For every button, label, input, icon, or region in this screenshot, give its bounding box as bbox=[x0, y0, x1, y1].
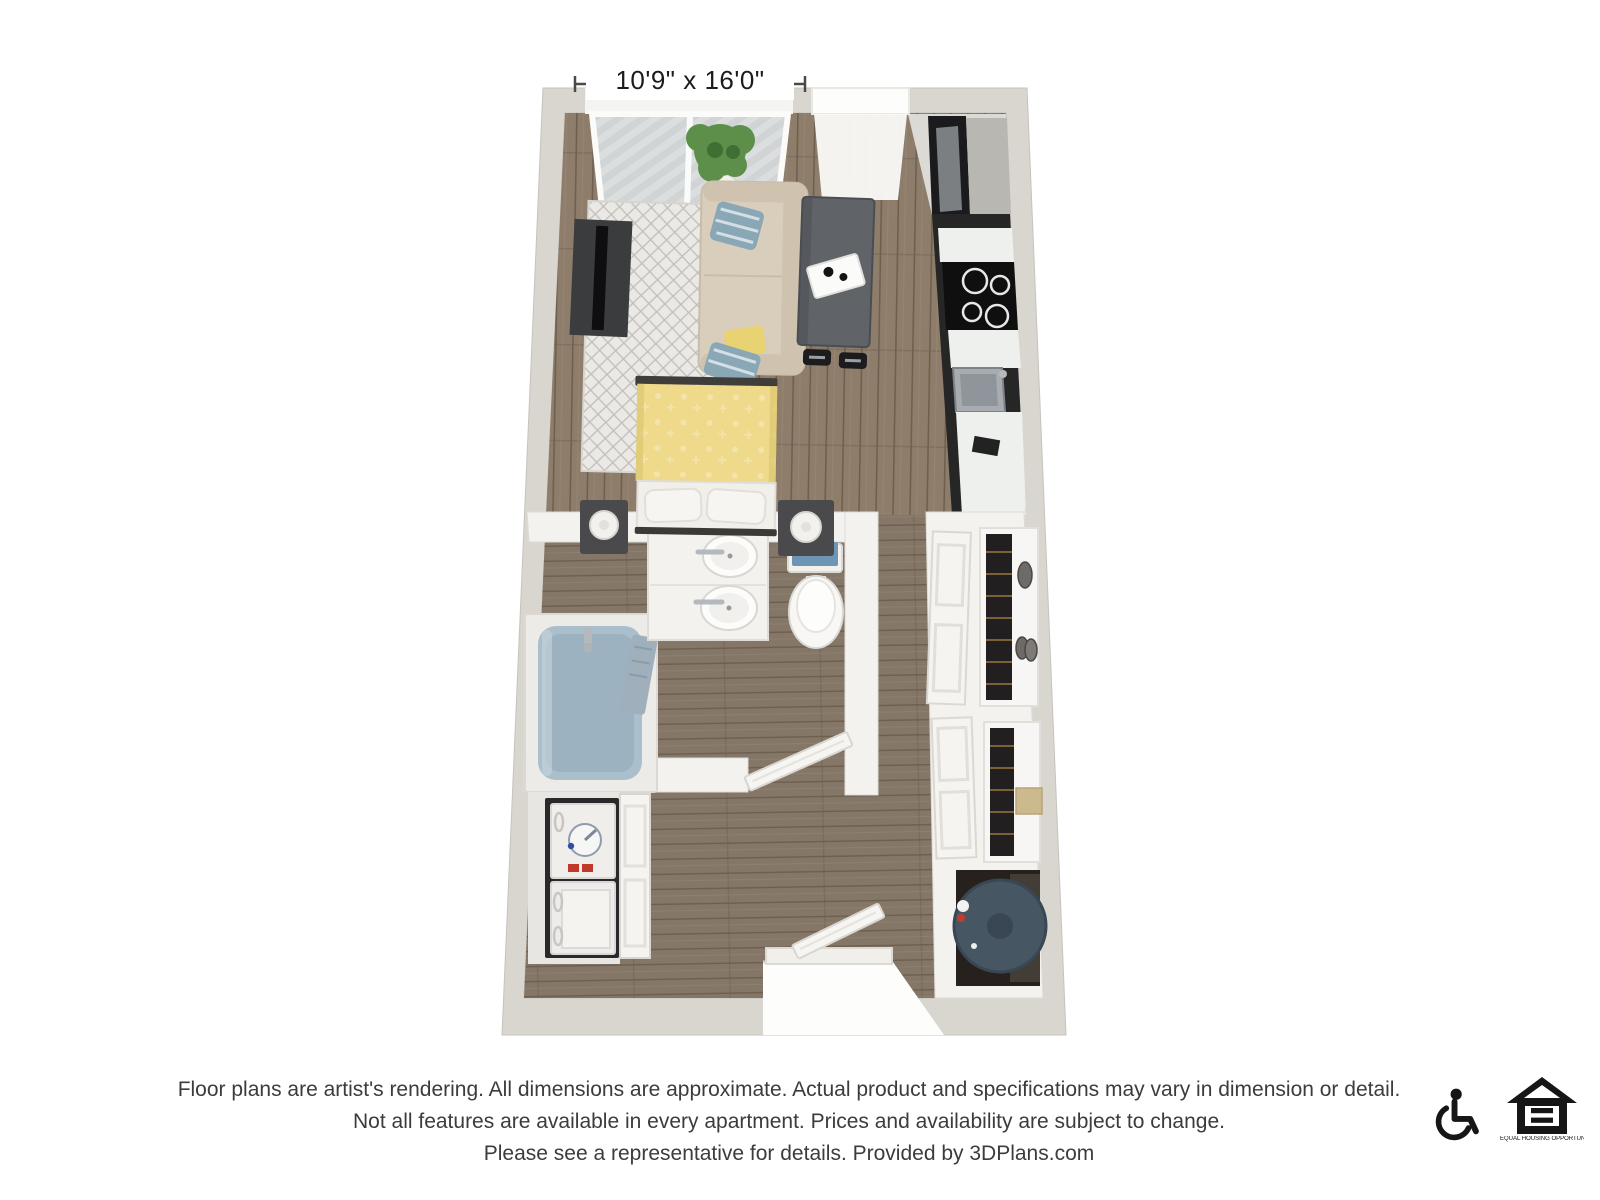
disclaimer-line-3: Please see a representative for details.… bbox=[0, 1138, 1578, 1170]
sofa bbox=[698, 181, 808, 389]
bathtub bbox=[525, 614, 658, 792]
equal-housing-opportunity-icon bbox=[1500, 1076, 1584, 1136]
wardrobe-closets bbox=[926, 512, 1046, 998]
closet-shelf-upper bbox=[980, 528, 1038, 706]
disclaimer-line-2: Not all features are available in every … bbox=[0, 1106, 1578, 1138]
bed-pillow bbox=[706, 489, 766, 525]
footer-icons: EQUAL HOUSING OPPORTUNITY bbox=[1426, 1076, 1584, 1143]
washer bbox=[551, 804, 615, 878]
kitchen-cabinet bbox=[966, 118, 1011, 214]
dryer bbox=[551, 882, 615, 954]
nightstand bbox=[778, 500, 834, 556]
kitchen-sink bbox=[953, 368, 1007, 412]
floor-plan-render bbox=[0, 0, 1600, 1200]
closet-door-lower bbox=[932, 717, 977, 858]
bed-pillow bbox=[645, 488, 702, 522]
cooktop bbox=[942, 262, 1018, 330]
floor-plan-page: 10'9" x 16'0" Floor plans are artist's r… bbox=[0, 0, 1600, 1200]
disclaimer: Floor plans are artist's rendering. All … bbox=[0, 1074, 1578, 1170]
disclaimer-line-1: Floor plans are artist's rendering. All … bbox=[0, 1074, 1578, 1106]
entry-threshold bbox=[766, 948, 892, 964]
kitchen-island bbox=[797, 197, 875, 369]
laundry-closet bbox=[528, 792, 620, 964]
closet-door-upper bbox=[927, 531, 971, 704]
equal-housing-caption: EQUAL HOUSING OPPORTUNITY bbox=[1500, 1136, 1584, 1143]
wheelchair-accessible-icon bbox=[1426, 1086, 1488, 1142]
vanity bbox=[648, 528, 768, 640]
window bbox=[812, 88, 909, 200]
toilet bbox=[788, 542, 843, 648]
bathroom-wall-right bbox=[845, 512, 878, 795]
dimension-label: 10'9" x 16'0" bbox=[586, 60, 794, 100]
stool bbox=[839, 352, 868, 369]
water-heater-closet bbox=[954, 870, 1046, 986]
laundry-door bbox=[620, 794, 650, 958]
stool bbox=[803, 349, 832, 366]
nightstand bbox=[580, 500, 628, 554]
tv-console bbox=[569, 219, 632, 337]
closet-shelf-lower bbox=[984, 722, 1042, 862]
bed bbox=[633, 376, 780, 536]
